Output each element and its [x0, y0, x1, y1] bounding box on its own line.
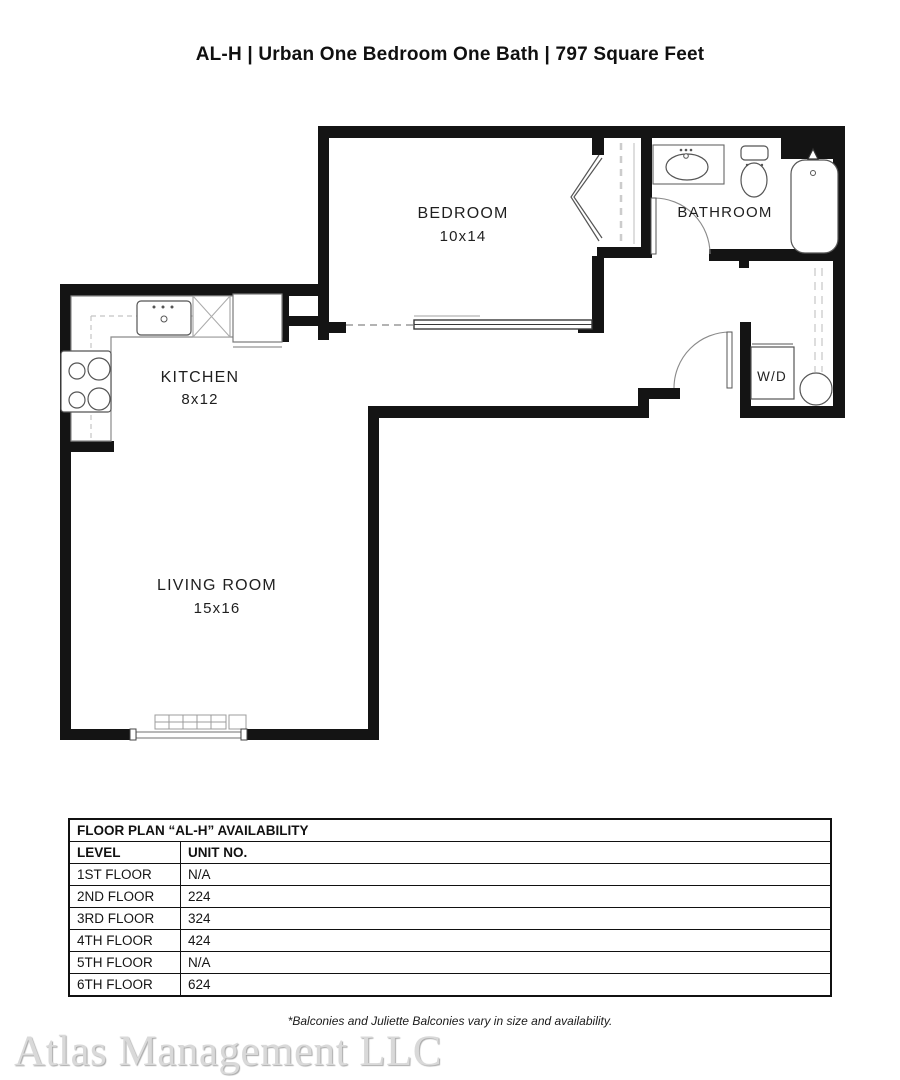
col-header-unit: UNIT NO.: [181, 842, 832, 864]
hall-door: [674, 332, 732, 388]
watermark: Atlas Management LLC: [14, 1027, 442, 1076]
laundry-label: W/D: [757, 369, 787, 384]
bathtub: [791, 149, 838, 253]
kitchen-sink: [137, 301, 191, 335]
table-row: 6TH FLOOR 624: [69, 974, 831, 997]
unit-cell: 624: [181, 974, 832, 997]
level-cell: 2ND FLOOR: [69, 886, 181, 908]
table-title-row: FLOOR PLAN “AL-H” AVAILABILITY: [69, 819, 831, 842]
toilet: [741, 146, 768, 197]
bedroom-dims: 10x14: [440, 228, 487, 245]
level-cell: 6TH FLOOR: [69, 974, 181, 997]
table-row: 2ND FLOOR 224: [69, 886, 831, 908]
living-room-window: [130, 715, 247, 740]
level-cell: 4TH FLOOR: [69, 930, 181, 952]
table-row: 1ST FLOOR N/A: [69, 864, 831, 886]
table-row: 3RD FLOOR 324: [69, 908, 831, 930]
kitchen-dims: 8x12: [181, 391, 218, 408]
table-row: 5TH FLOOR N/A: [69, 952, 831, 974]
availability-table: FLOOR PLAN “AL-H” AVAILABILITY LEVEL UNI…: [68, 818, 832, 997]
living-room-dims: 15x16: [194, 600, 241, 617]
table-title: FLOOR PLAN “AL-H” AVAILABILITY: [69, 819, 831, 842]
floor-plan: BEDROOM 10x14 BATHROOM KITCHEN 8x12 LIVI…: [0, 0, 900, 790]
unit-cell: N/A: [181, 864, 832, 886]
bedroom-closet: [571, 143, 634, 244]
kitchen-fixtures: [61, 294, 282, 441]
level-cell: 5TH FLOOR: [69, 952, 181, 974]
water-heater: [800, 373, 832, 405]
flyer-page: AL-H | Urban One Bedroom One Bath | 797 …: [0, 0, 900, 1080]
col-header-level: LEVEL: [69, 842, 181, 864]
living-room-label: LIVING ROOM: [157, 577, 277, 594]
table-header-row: LEVEL UNIT NO.: [69, 842, 831, 864]
bathroom-label: BATHROOM: [677, 204, 772, 221]
bedroom-label: BEDROOM: [417, 205, 508, 222]
footnote: *Balconies and Juliette Balconies vary i…: [0, 1014, 900, 1028]
unit-cell: N/A: [181, 952, 832, 974]
refrigerator: [233, 294, 282, 347]
unit-cell: 424: [181, 930, 832, 952]
level-cell: 1ST FLOOR: [69, 864, 181, 886]
dishwasher: [193, 296, 230, 337]
unit-cell: 324: [181, 908, 832, 930]
stove: [61, 351, 111, 412]
level-cell: 3RD FLOOR: [69, 908, 181, 930]
bedroom-window: [346, 316, 592, 329]
vanity-sink: [653, 145, 724, 184]
table-row: 4TH FLOOR 424: [69, 930, 831, 952]
baseboard-heater: [155, 715, 246, 729]
unit-cell: 224: [181, 886, 832, 908]
availability-table-wrap: FLOOR PLAN “AL-H” AVAILABILITY LEVEL UNI…: [68, 818, 832, 997]
kitchen-label: KITCHEN: [161, 369, 240, 386]
bathroom-fixtures: [651, 145, 838, 254]
laundry-area: [674, 268, 832, 405]
